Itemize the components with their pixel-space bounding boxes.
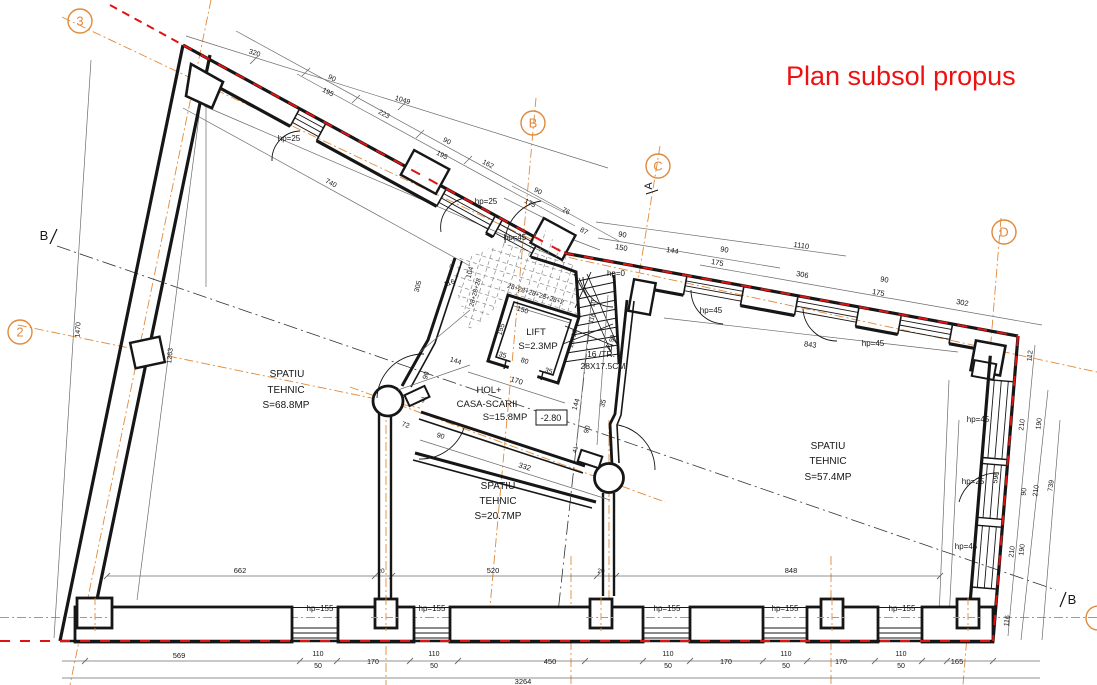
svg-text:hp=25: hp=25 <box>278 134 301 143</box>
svg-text:110: 110 <box>662 651 673 658</box>
svg-text:B: B <box>529 116 538 131</box>
svg-text:520: 520 <box>487 566 500 575</box>
svg-text:S=15.8MP: S=15.8MP <box>483 412 528 423</box>
svg-text:SPATIU: SPATIU <box>270 369 305 380</box>
svg-text:110: 110 <box>312 651 323 658</box>
svg-text:hp=0: hp=0 <box>607 269 626 278</box>
svg-text:843: 843 <box>804 339 818 349</box>
svg-text:210: 210 <box>1032 484 1040 497</box>
svg-text:A: A <box>643 182 655 190</box>
svg-text:hp=45: hp=45 <box>955 542 978 551</box>
svg-text:90: 90 <box>720 244 730 254</box>
svg-text:110: 110 <box>780 651 791 658</box>
svg-text:SPATIU: SPATIU <box>481 481 516 492</box>
svg-text:3264: 3264 <box>515 677 532 685</box>
svg-text:hp=155: hp=155 <box>889 604 916 613</box>
svg-text:28X17.5CM: 28X17.5CM <box>581 361 626 371</box>
svg-text:B: B <box>1068 592 1077 607</box>
svg-text:3: 3 <box>76 14 83 29</box>
svg-text:hp=25: hp=25 <box>475 197 498 206</box>
svg-text:569: 569 <box>173 651 186 660</box>
svg-text:210: 210 <box>1018 418 1026 431</box>
svg-text:hp=155: hp=155 <box>772 604 799 613</box>
svg-text:TEHNIC: TEHNIC <box>809 456 846 467</box>
svg-text:16 /TR.: 16 /TR. <box>587 349 615 359</box>
svg-text:210: 210 <box>1008 545 1016 558</box>
svg-text:hp=45: hp=45 <box>504 233 527 242</box>
svg-text:90: 90 <box>1021 487 1029 496</box>
svg-text:S=2.3MP: S=2.3MP <box>518 341 557 352</box>
svg-text:170: 170 <box>835 659 847 666</box>
svg-text:170: 170 <box>720 659 732 666</box>
svg-text:Plan subsol propus: Plan subsol propus <box>786 61 1016 91</box>
svg-text:165: 165 <box>951 657 964 666</box>
svg-text:hp=155: hp=155 <box>419 604 446 613</box>
svg-text:50: 50 <box>782 663 790 670</box>
svg-text:TEHNIC: TEHNIC <box>267 385 304 396</box>
svg-text:SPATIU: SPATIU <box>811 441 846 452</box>
svg-text:D: D <box>999 225 1008 240</box>
svg-text:LIFT: LIFT <box>526 327 546 338</box>
svg-text:hp=25: hp=25 <box>962 477 985 486</box>
svg-text:90: 90 <box>618 229 628 239</box>
svg-text:170: 170 <box>367 659 379 666</box>
svg-text:S=57.4MP: S=57.4MP <box>805 472 852 483</box>
svg-text:110: 110 <box>895 651 906 658</box>
svg-text:1470: 1470 <box>74 322 82 338</box>
svg-text:hp=155: hp=155 <box>654 604 681 613</box>
svg-text:50: 50 <box>897 663 905 670</box>
svg-text:110: 110 <box>428 651 439 658</box>
svg-text:B: B <box>40 228 49 243</box>
svg-text:739: 739 <box>1047 479 1055 492</box>
svg-text:190: 190 <box>1018 543 1026 556</box>
svg-text:hp=45: hp=45 <box>700 306 723 315</box>
svg-text:S=68.8MP: S=68.8MP <box>263 400 310 411</box>
svg-text:190: 190 <box>1035 417 1043 430</box>
svg-text:TEHNIC: TEHNIC <box>479 496 516 507</box>
svg-text:662: 662 <box>234 566 247 575</box>
svg-text:hp=155: hp=155 <box>307 604 334 613</box>
svg-text:90: 90 <box>880 274 890 284</box>
svg-text:hp=45: hp=45 <box>967 415 990 424</box>
svg-text:848: 848 <box>785 566 798 575</box>
svg-text:HOL+: HOL+ <box>476 385 502 396</box>
svg-text:-2.80: -2.80 <box>541 413 562 423</box>
svg-text:CASA-SCARII: CASA-SCARII <box>457 399 518 410</box>
svg-text:116: 116 <box>1003 615 1011 627</box>
svg-text:112: 112 <box>1026 350 1034 362</box>
svg-text:50: 50 <box>430 663 438 670</box>
svg-text:450: 450 <box>544 657 557 666</box>
svg-text:S=20.7MP: S=20.7MP <box>475 511 522 522</box>
svg-text:2: 2 <box>16 325 23 340</box>
svg-text:C: C <box>653 159 662 174</box>
svg-text:hp=45: hp=45 <box>862 339 885 348</box>
svg-text:50: 50 <box>664 663 672 670</box>
svg-text:50: 50 <box>314 663 322 670</box>
